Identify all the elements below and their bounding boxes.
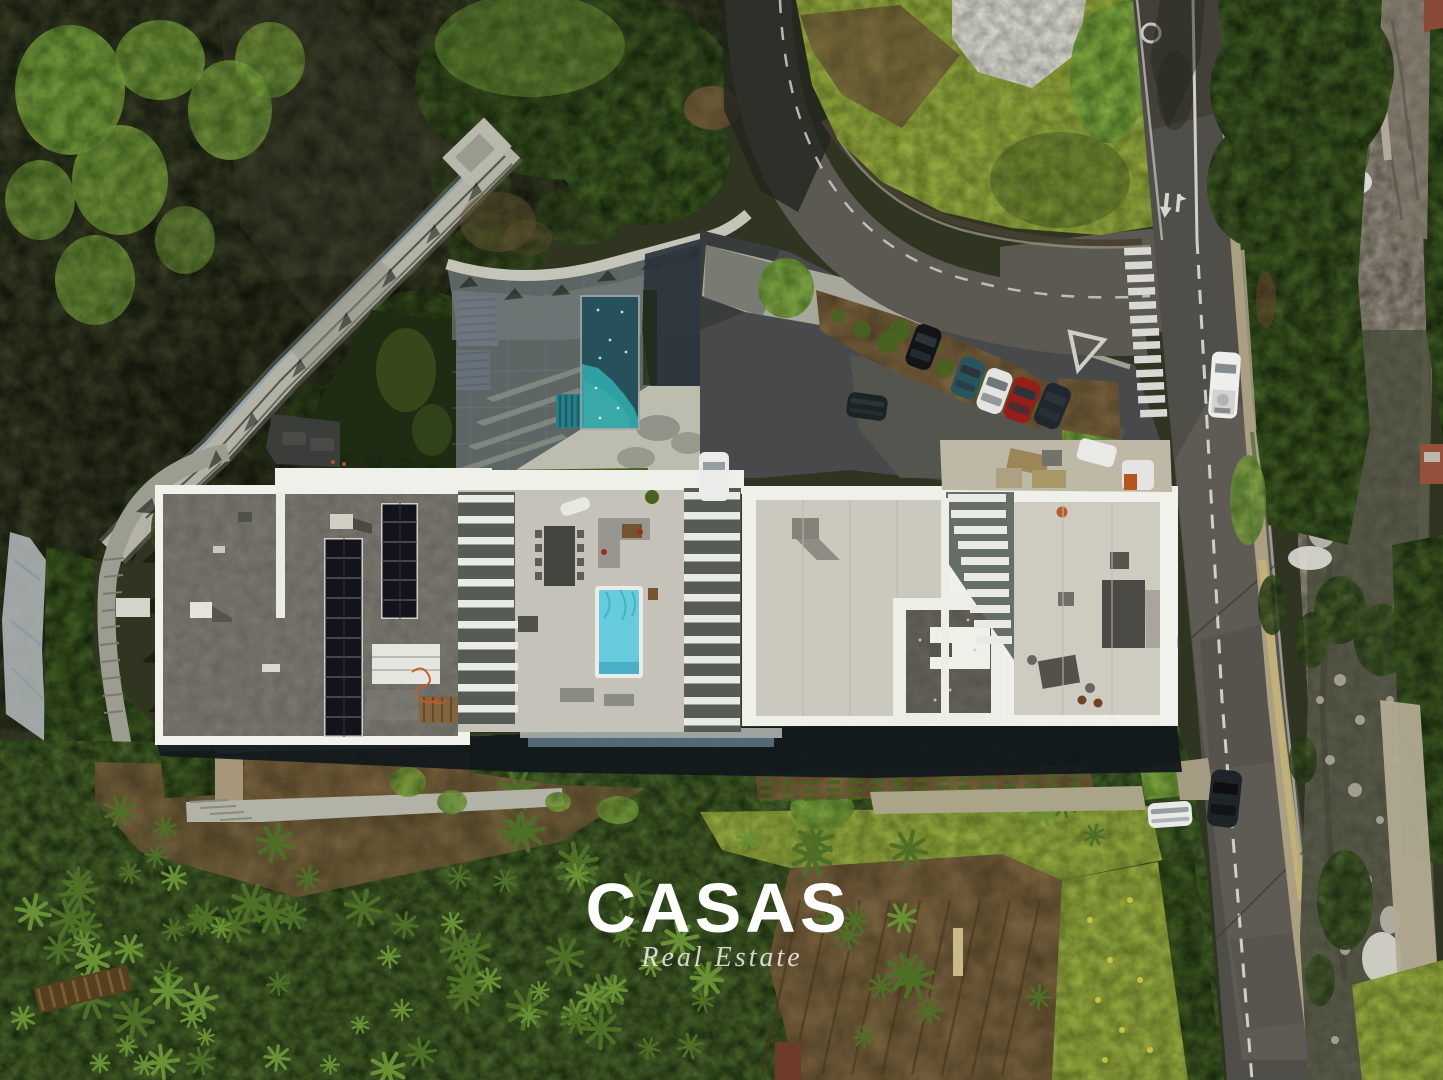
svg-text:CASAS: CASAS [585,869,850,947]
svg-text:Real Estate: Real Estate [640,942,802,973]
